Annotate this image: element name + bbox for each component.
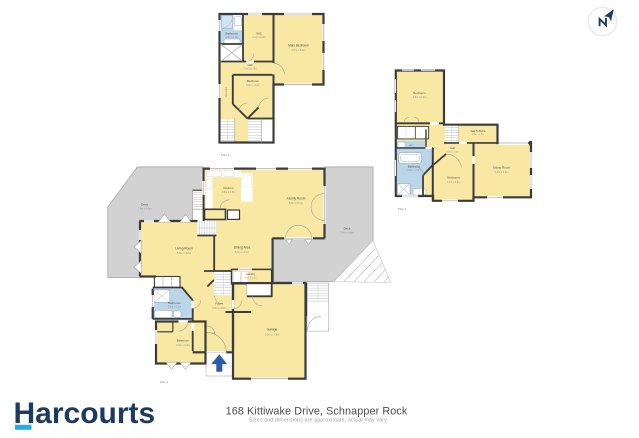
- svg-text:3.9m x 5.2m: 3.9m x 5.2m: [291, 48, 305, 52]
- svg-text:Sitting Room: Sitting Room: [493, 166, 511, 170]
- svg-text:3.6m x 4.2m: 3.6m x 4.2m: [413, 96, 427, 99]
- svg-text:2.9m x 1.1m: 2.9m x 1.1m: [244, 278, 256, 280]
- svg-text:3.7m x 3.3m: 3.7m x 3.3m: [176, 344, 190, 347]
- svg-text:Bedroom: Bedroom: [413, 91, 426, 95]
- svg-text:Plan 1: Plan 1: [160, 380, 169, 384]
- svg-text:Kitchen: Kitchen: [223, 186, 233, 190]
- svg-text:Dining Area: Dining Area: [234, 246, 251, 250]
- svg-text:Family Room: Family Room: [287, 197, 306, 201]
- svg-text:5.8m x 5.6m: 5.8m x 5.6m: [289, 201, 303, 205]
- svg-text:2.6m x 1.4m: 2.6m x 1.4m: [243, 67, 256, 70]
- svg-text:5.6m x 4.6m: 5.6m x 4.6m: [177, 251, 191, 255]
- svg-text:Foyer: Foyer: [215, 302, 223, 306]
- svg-text:Hall: Hall: [450, 146, 455, 150]
- svg-text:Laundry: Laundry: [246, 273, 256, 276]
- svg-text:Plan 2: Plan 2: [398, 207, 407, 211]
- svg-text:WIC: WIC: [256, 31, 262, 35]
- svg-text:3.6m x 8.8m: 3.6m x 8.8m: [340, 232, 354, 235]
- svg-text:Main Bedroom: Main Bedroom: [288, 44, 309, 48]
- svg-text:Garage: Garage: [267, 328, 278, 332]
- svg-text:2.8m x 1.6m: 2.8m x 1.6m: [225, 36, 238, 39]
- svg-text:7.9m x 4.2m: 7.9m x 4.2m: [138, 208, 152, 211]
- svg-text:5.0m x 4.3m: 5.0m x 4.3m: [235, 250, 249, 254]
- svg-text:Wardrobe: Wardrobe: [225, 86, 228, 97]
- svg-text:Bedroom: Bedroom: [177, 339, 190, 343]
- svg-text:168 Kittiwake Drive, Schnapper: 168 Kittiwake Drive, Schnapper Rock: [226, 406, 408, 418]
- svg-text:Sizes and dimensions are appro: Sizes and dimensions are approximate, ac…: [249, 418, 387, 424]
- svg-text:Living Room: Living Room: [175, 247, 193, 251]
- svg-text:Deck: Deck: [344, 227, 351, 231]
- svg-text:Harcourts: Harcourts: [14, 397, 156, 430]
- svg-text:4.3m x 4.2m: 4.3m x 4.2m: [495, 171, 509, 174]
- svg-text:WC: WC: [409, 145, 413, 147]
- svg-text:3.0m x 3.2m: 3.0m x 3.2m: [246, 84, 260, 87]
- svg-text:Bedroom: Bedroom: [447, 176, 460, 180]
- svg-text:Bathroom: Bathroom: [226, 31, 239, 35]
- svg-text:5.5m x 7.3m: 5.5m x 7.3m: [265, 332, 279, 336]
- svg-text:3.6m x 2.8m: 3.6m x 2.8m: [222, 191, 236, 194]
- svg-text:3.1m x 3.5m: 3.1m x 3.5m: [447, 181, 461, 184]
- svg-text:2.1m x 2.0m: 2.1m x 2.0m: [252, 36, 265, 39]
- svg-text:Bedroom: Bedroom: [247, 79, 260, 83]
- svg-text:3.0m x 2.3m: 3.0m x 2.3m: [168, 306, 181, 309]
- svg-text:Stair To Below: Stair To Below: [470, 130, 486, 133]
- svg-text:Deck: Deck: [141, 203, 148, 207]
- svg-text:3.0m x 4.8m: 3.0m x 4.8m: [212, 307, 226, 310]
- svg-text:Bathroom: Bathroom: [168, 301, 181, 305]
- svg-text:Hall: Hall: [248, 63, 253, 67]
- svg-text:5.3m x 2.0m: 5.3m x 2.0m: [446, 151, 458, 153]
- svg-text:2.8m x 2.4m: 2.8m x 2.4m: [407, 169, 420, 172]
- svg-text:2.9m x 1.3m: 2.9m x 1.3m: [472, 134, 484, 136]
- svg-text:Plan 3: Plan 3: [221, 153, 230, 157]
